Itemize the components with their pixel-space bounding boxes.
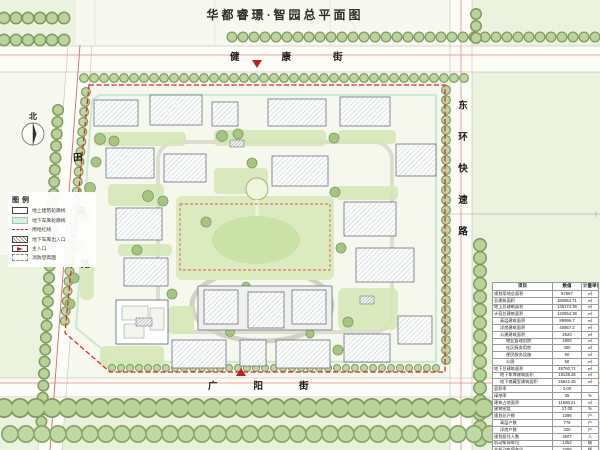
building bbox=[204, 290, 238, 324]
header-item: 项目 bbox=[493, 283, 553, 291]
building bbox=[164, 154, 206, 182]
legend-panel: 图例 地上建筑轮廓线 地下车库轮廓线 用地红线 地下车库出入口 主入口 消防登高… bbox=[8, 192, 96, 267]
building bbox=[124, 258, 168, 286]
garage-entrance bbox=[136, 318, 152, 326]
table-row: 公厕50㎡ bbox=[493, 358, 599, 365]
table-row: 高层户数776户 bbox=[493, 420, 599, 427]
table-row: 社区服务用房400㎡ bbox=[493, 345, 599, 352]
street-label-bottom: 广阳街 bbox=[208, 378, 345, 392]
building bbox=[396, 144, 436, 176]
legend-item: 地下车库轮廓线 bbox=[12, 217, 92, 224]
table-row: 总建筑面积180954.71㎡ bbox=[493, 297, 599, 304]
building bbox=[172, 340, 226, 368]
building bbox=[356, 248, 414, 282]
garage-entrance-swatch-icon bbox=[12, 236, 28, 243]
garage-entrance bbox=[230, 140, 244, 147]
table-row: 地下车库建筑面积19138.26㎡ bbox=[493, 372, 599, 379]
building bbox=[292, 290, 326, 324]
legend-item: 消防登高面 bbox=[12, 254, 92, 261]
table-row: 洋房户数320户 bbox=[493, 426, 599, 433]
legend-title: 图例 bbox=[12, 195, 92, 205]
legend-item: 地上建筑轮廓线 bbox=[12, 207, 92, 214]
table-row: 机动车停车位1352辆 bbox=[493, 440, 599, 447]
red-line-swatch-icon bbox=[12, 229, 28, 230]
table-row: 地下总建筑面积45780.71㎡ bbox=[493, 365, 599, 372]
building bbox=[344, 334, 390, 362]
table-row: 便民服务设施50㎡ bbox=[493, 352, 599, 359]
table-row: 规划总户数1096户 bbox=[493, 413, 599, 420]
building bbox=[106, 148, 154, 178]
table-row: 绿地率35% bbox=[493, 392, 599, 399]
building bbox=[272, 156, 328, 186]
fire-access-swatch-icon bbox=[12, 254, 28, 261]
indicator-table: 项目 数值 计量单位 规划用地总面积67567㎡总建筑面积180954.71㎡地… bbox=[492, 282, 599, 450]
table-row: 容积率2.00 bbox=[493, 386, 599, 393]
table-row: 公建建筑面积2520㎡ bbox=[493, 331, 599, 338]
table-row: 地上总建筑面积135174.38㎡ bbox=[493, 304, 599, 311]
header-unit: 计量单位 bbox=[582, 283, 599, 291]
street-label-top: 健康街 bbox=[230, 49, 385, 63]
building bbox=[344, 202, 396, 236]
building bbox=[340, 97, 390, 126]
garage-outline-swatch-icon bbox=[12, 217, 28, 224]
north-label: 北 bbox=[29, 111, 37, 121]
site-plan-canvas: 北 华都睿璟·智园总平面图 健康街 广阳街 田安路 东环快速路 幼儿园 图例 地… bbox=[0, 0, 600, 450]
header-value: 数值 bbox=[553, 283, 582, 291]
table-row: 地下储藏室建筑面积26642.45㎡ bbox=[493, 379, 599, 386]
table-row: 洋房建筑面积40967.3㎡ bbox=[493, 324, 599, 331]
legend-item: 用地红线 bbox=[12, 226, 92, 233]
building bbox=[268, 99, 326, 126]
table-row: 高层建筑面积89996.7㎡ bbox=[493, 318, 599, 325]
building bbox=[94, 100, 138, 126]
table-row: 建筑密度17.00% bbox=[493, 406, 599, 413]
building bbox=[398, 316, 432, 344]
table-row: 计容总建筑面积132654.38㎡ bbox=[493, 311, 599, 318]
legend-item: 地下车库出入口 bbox=[12, 236, 92, 243]
building bbox=[150, 95, 202, 125]
legend-item: 主入口 bbox=[12, 245, 92, 252]
table-header-row: 项目 数值 计量单位 bbox=[493, 283, 599, 291]
building bbox=[212, 102, 238, 126]
building bbox=[276, 340, 330, 368]
building bbox=[116, 208, 162, 240]
building bbox=[240, 340, 266, 366]
table-row: 规划用地总面积67567㎡ bbox=[493, 291, 599, 298]
drawing-title: 华都睿璟·智园总平面图 bbox=[150, 6, 420, 23]
building bbox=[248, 292, 284, 328]
street-label-right: 东环快速路 bbox=[454, 100, 468, 258]
garage-entrance bbox=[360, 296, 374, 304]
main-entrance-swatch-icon bbox=[12, 245, 28, 252]
table-row: 规划居住人数2507人 bbox=[493, 433, 599, 440]
table-row: 建筑占地面积11568.21㎡ bbox=[493, 399, 599, 406]
table-row: 物业管理用房1800㎡ bbox=[493, 338, 599, 345]
indicator-table-body: 规划用地总面积67567㎡总建筑面积180954.71㎡地上总建筑面积13517… bbox=[493, 291, 599, 450]
north-arrow: 北 bbox=[22, 111, 44, 145]
building-outline-swatch-icon bbox=[12, 207, 28, 214]
